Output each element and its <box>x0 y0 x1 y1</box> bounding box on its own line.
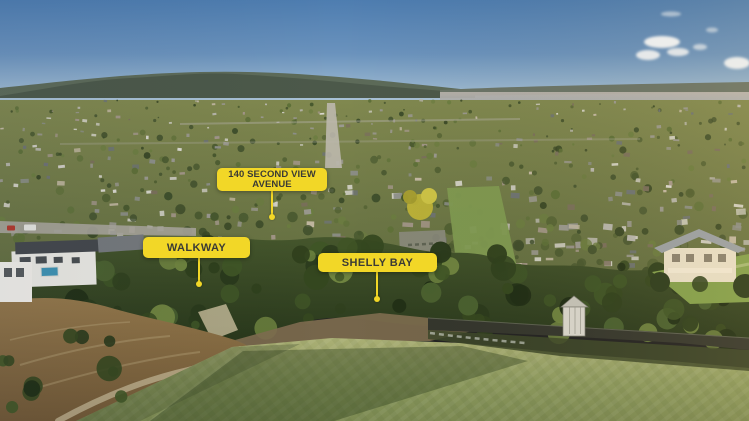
callout-leader-line-shelly-bay <box>376 272 378 297</box>
scene <box>0 0 749 421</box>
light-overlay <box>0 0 749 421</box>
callout-dot-walkway <box>196 281 202 287</box>
aerial-photo: 140 SECOND VIEW AVENUE WALKWAY SHELLY BA… <box>0 0 749 421</box>
callout-leader-line-address <box>271 191 273 215</box>
callout-shelly-bay: SHELLY BAY <box>318 253 437 272</box>
callout-dot-address <box>269 214 275 220</box>
callout-140-second-view-avenue: 140 SECOND VIEW AVENUE <box>217 168 327 191</box>
callout-walkway: WALKWAY <box>143 237 250 258</box>
callout-dot-shelly-bay <box>374 296 380 302</box>
callout-leader-line-walkway <box>198 258 200 282</box>
